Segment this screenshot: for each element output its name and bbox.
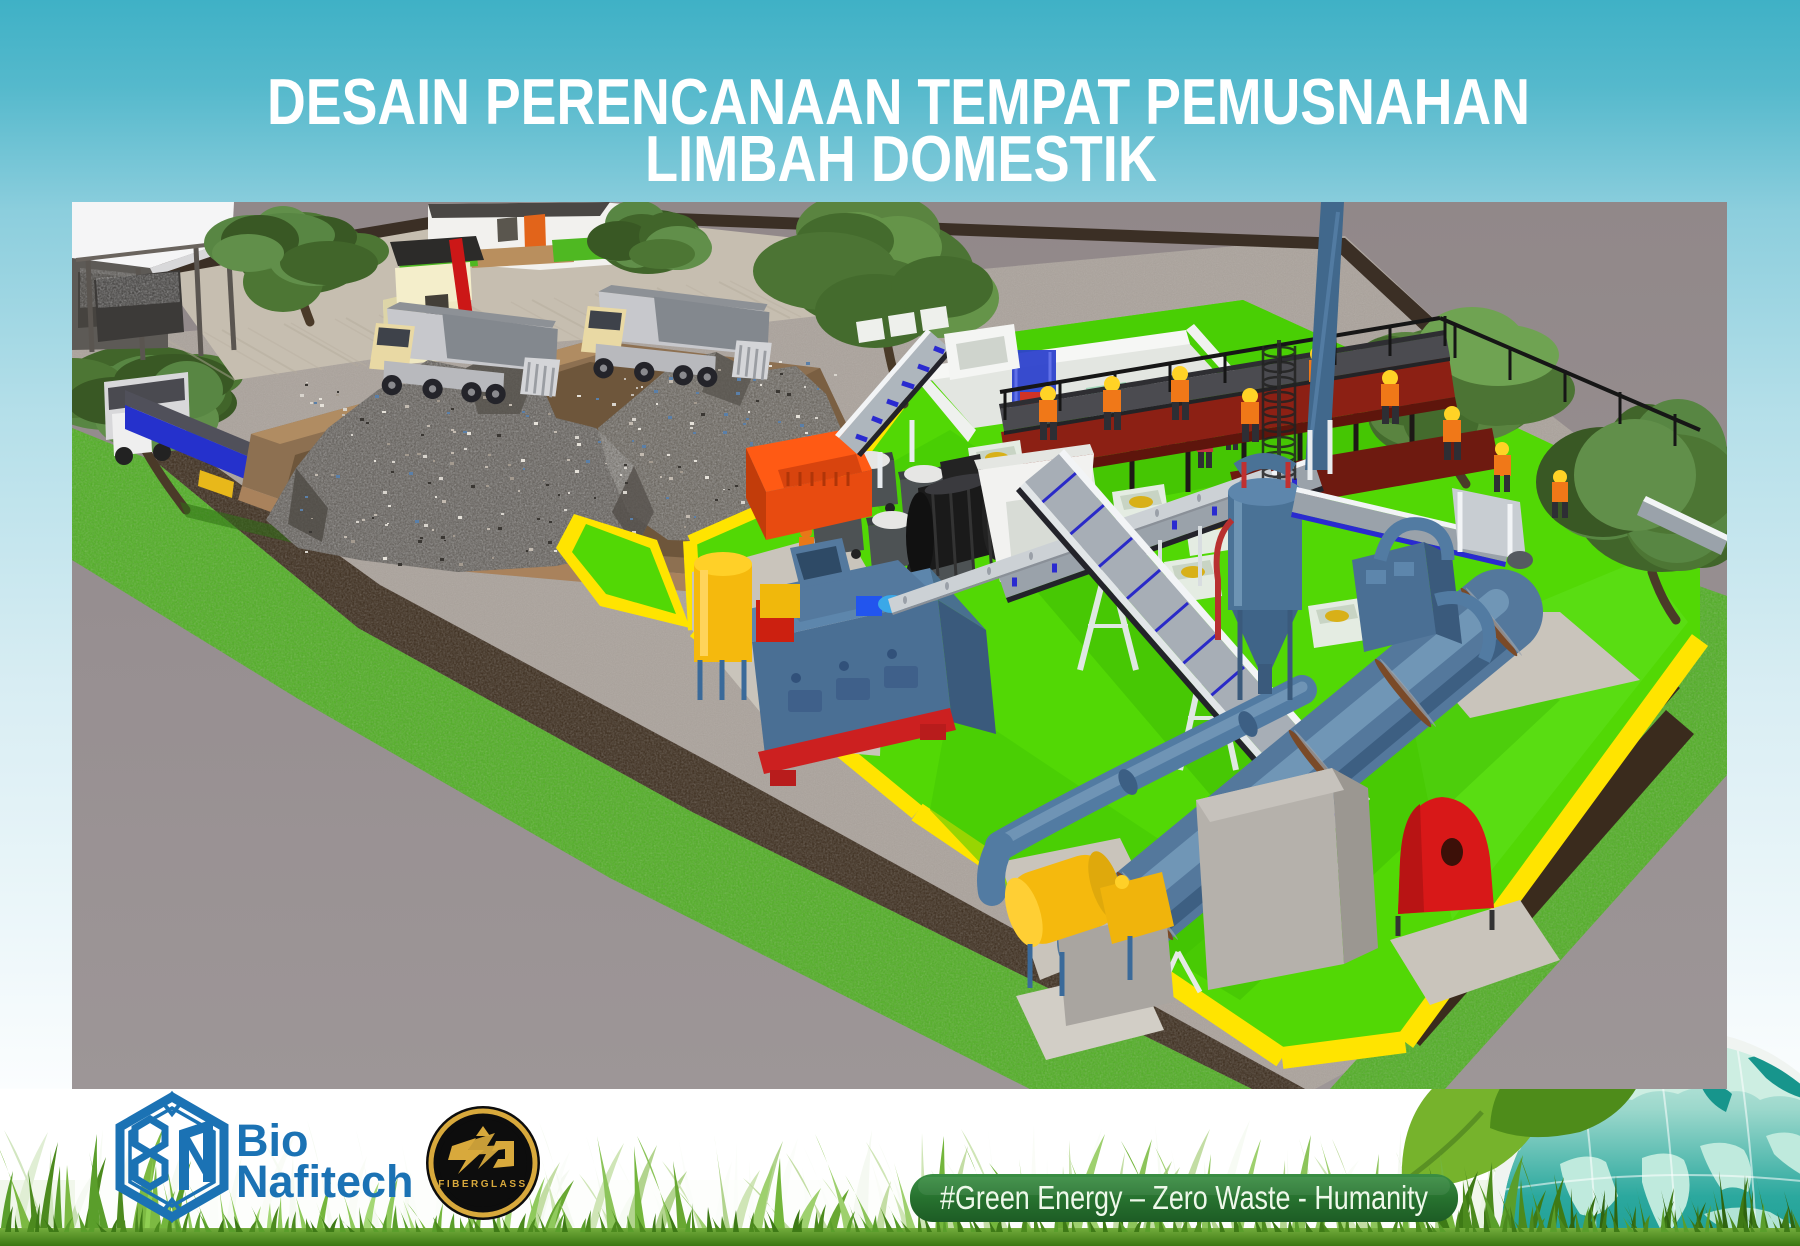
svg-text:LIMBAH DOMESTIK: LIMBAH DOMESTIK [645,122,1157,195]
svg-text:FIBERGLASS: FIBERGLASS [438,1179,527,1190]
svg-text:Nafitech: Nafitech [236,1156,414,1207]
svg-text:#Green Energy – Zero Waste - H: #Green Energy – Zero Waste - Humanity [940,1179,1428,1216]
